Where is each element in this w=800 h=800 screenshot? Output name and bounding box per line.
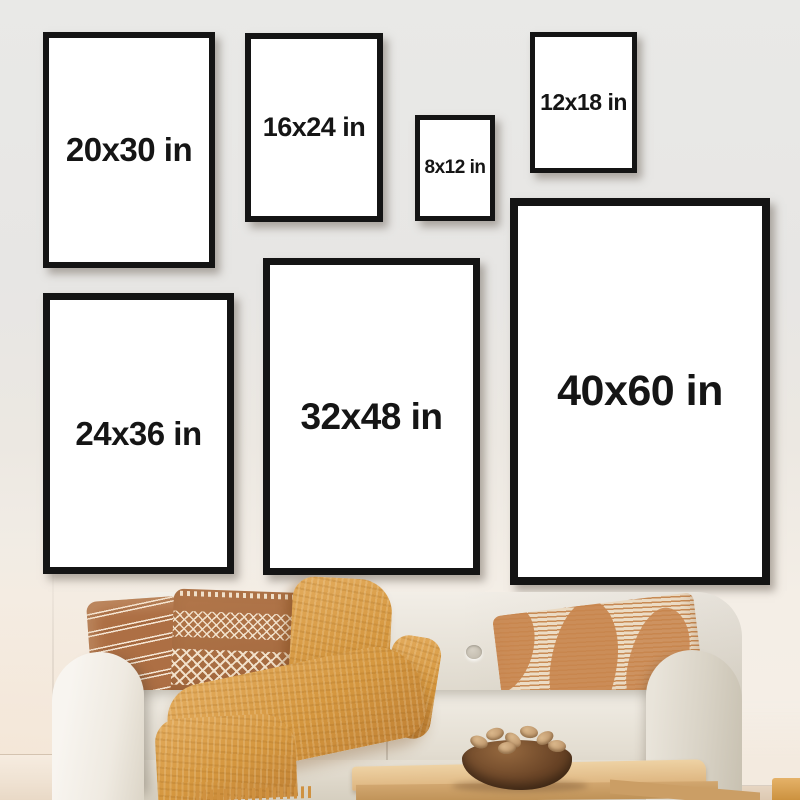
baseboard-right <box>740 700 800 786</box>
size-label: 8x12 in <box>425 157 486 179</box>
living-room-scene: 20x30 in 16x24 in 8x12 in 12x18 in 24x36… <box>0 0 800 800</box>
size-label: 40x60 in <box>557 367 723 416</box>
size-label: 24x36 in <box>75 415 201 453</box>
poster-frame-8x12: 8x12 in <box>415 115 495 221</box>
sofa-button-tuft <box>466 645 482 659</box>
poster-frame-40x60: 40x60 in <box>510 198 770 585</box>
poster-frame-16x24: 16x24 in <box>245 33 383 222</box>
poster-frame-24x36: 24x36 in <box>43 293 234 574</box>
nut <box>498 741 517 755</box>
poster-frame-12x18: 12x18 in <box>530 32 637 173</box>
nut <box>485 726 505 742</box>
size-label: 12x18 in <box>540 89 627 116</box>
baseboard-left <box>0 754 54 800</box>
bowl-of-nuts <box>468 726 568 758</box>
pillow-trim <box>180 591 310 601</box>
size-label: 20x30 in <box>66 131 192 169</box>
sofa-armrest-left <box>52 652 144 800</box>
poster-frame-32x48: 32x48 in <box>263 258 480 575</box>
size-label: 32x48 in <box>300 396 442 438</box>
poster-frame-20x30: 20x30 in <box>43 32 215 268</box>
size-label: 16x24 in <box>263 112 366 143</box>
nut <box>548 739 567 753</box>
side-table-corner <box>772 778 800 800</box>
